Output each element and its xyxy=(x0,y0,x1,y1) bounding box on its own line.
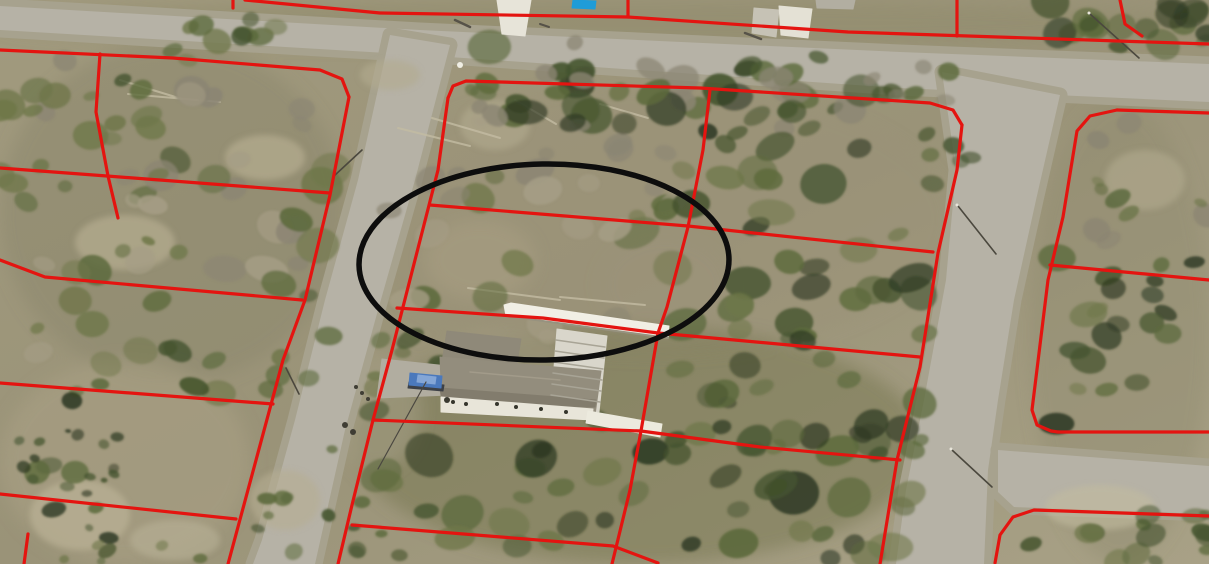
white-marker xyxy=(457,62,463,68)
house-window xyxy=(451,400,455,404)
pole-base xyxy=(956,204,959,207)
aerial-map xyxy=(0,0,1209,564)
house-window xyxy=(564,410,568,414)
driveway-pad-1 xyxy=(497,0,531,36)
pole-base xyxy=(1088,12,1091,15)
roof-top-edge xyxy=(816,0,855,9)
shrub xyxy=(350,429,356,435)
aerial-map-canvas xyxy=(0,0,1209,564)
pole-base xyxy=(950,448,953,451)
sand-patch xyxy=(130,520,220,560)
driveway-pad-2 xyxy=(779,6,812,38)
yard-post xyxy=(366,397,370,401)
tree-canopy xyxy=(1075,523,1104,543)
tree-canopy xyxy=(504,100,548,125)
yard-post xyxy=(360,391,364,395)
house-window xyxy=(464,402,468,406)
shrub xyxy=(342,422,348,428)
blue-pool-roof xyxy=(572,0,596,9)
house-equipment xyxy=(444,397,450,403)
car-roof xyxy=(417,375,436,384)
house-window xyxy=(539,407,543,411)
house-window xyxy=(495,402,499,406)
driveway-apron xyxy=(752,8,779,37)
yard-post xyxy=(354,385,358,389)
sand-patch xyxy=(360,60,420,90)
house-window xyxy=(514,405,518,409)
